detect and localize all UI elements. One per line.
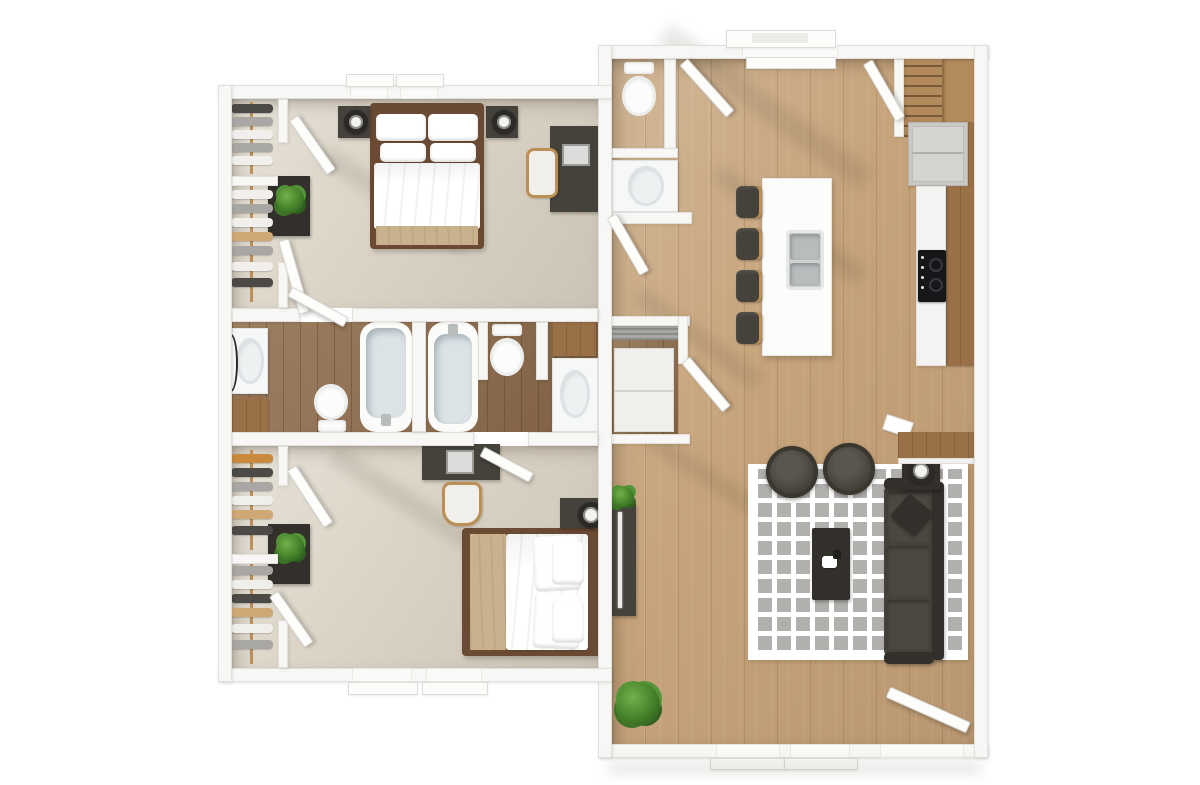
clothes-item (231, 640, 273, 649)
cooktop-burner (929, 258, 943, 272)
clothes-item (231, 278, 273, 287)
dresser-plant (276, 534, 304, 562)
closet-wall (278, 99, 288, 143)
partition-wall (412, 322, 426, 432)
sink-bowl (790, 263, 820, 286)
clothes-item (231, 608, 273, 617)
closet-louver (612, 326, 678, 340)
exterior-shadow (608, 762, 980, 774)
clothes-item (231, 262, 273, 271)
cooktop-knob (921, 266, 924, 269)
bath-cabinet (232, 398, 268, 432)
clothes-item (231, 496, 273, 505)
clothes-item (231, 204, 273, 213)
cooktop-knob (921, 286, 924, 289)
clothes-item (231, 246, 273, 255)
partition-wall (528, 432, 598, 446)
window-sill (348, 682, 418, 695)
bed-tan-throw (376, 226, 478, 245)
toilet-bowl (490, 338, 524, 376)
toilet-bowl (314, 384, 348, 420)
nightstand-lamp (344, 110, 368, 134)
counter-wood-top (946, 186, 974, 366)
window (350, 85, 388, 99)
clothes-item (231, 218, 273, 227)
tub-faucet (381, 414, 391, 426)
closet-wall (232, 554, 278, 564)
bed-pillow (380, 143, 426, 162)
closet-wall (232, 176, 278, 186)
console-edge (898, 458, 974, 464)
stair-wall (894, 59, 904, 137)
window-sill (396, 74, 444, 87)
console-table (898, 432, 974, 460)
tv-screen (618, 512, 622, 608)
dresser-plant (276, 186, 304, 214)
partition-wall (232, 308, 300, 322)
bed-pillow (376, 114, 426, 141)
clothes-item (231, 156, 273, 165)
desk-chair (526, 148, 558, 198)
closet-wall (278, 620, 288, 668)
exterior-wall (974, 45, 988, 758)
floor-plan (0, 0, 1200, 785)
clothes-item (231, 104, 273, 113)
partition-wall (612, 212, 692, 224)
sofa-backrest (932, 482, 944, 660)
bed-pillow (430, 143, 476, 162)
clothes-item (231, 468, 273, 477)
bed-blanket (374, 163, 480, 229)
tub-faucet (448, 324, 458, 336)
exterior-wall (218, 85, 232, 682)
bath-cabinet (552, 322, 596, 356)
clothes-item (231, 566, 273, 575)
entry-door-opening (880, 744, 964, 758)
partition-wall (602, 316, 690, 326)
cooktop-knob (921, 256, 924, 259)
armchair (766, 446, 818, 498)
refrigerator-seam (912, 152, 964, 154)
cooktop-knob (921, 276, 924, 279)
window (400, 85, 438, 99)
cooktop-burner (929, 278, 943, 292)
bed-pillow (428, 114, 478, 141)
desk-chair (442, 482, 482, 526)
partition-wall (478, 322, 488, 380)
bed-pillow (552, 542, 584, 584)
exterior-wall (218, 668, 612, 682)
partition-wall (612, 148, 678, 158)
sofa-cushion (886, 546, 930, 596)
plant (612, 486, 634, 508)
partition-wall (678, 316, 688, 364)
window (716, 744, 780, 758)
floor-plant (616, 682, 660, 726)
bathtub-basin (366, 328, 406, 418)
exterior-wall (598, 45, 612, 758)
partition-wall (352, 308, 598, 322)
closet-wall (278, 446, 288, 486)
clothes-item (231, 482, 273, 491)
window (790, 744, 850, 758)
washer-seam (614, 390, 674, 392)
toilet-bowl (622, 76, 656, 116)
toilet-tank (318, 420, 346, 432)
refrigerator-doors (912, 126, 964, 182)
clothes-item (231, 624, 273, 633)
partition-wall (232, 432, 474, 446)
partition-wall (602, 434, 690, 444)
window-sill (746, 57, 836, 69)
bar-stool (736, 270, 762, 302)
toilet-tank (624, 62, 654, 74)
sofa-cushion (886, 600, 930, 650)
window (426, 668, 482, 682)
clothes-item (231, 580, 273, 589)
bed-tan-throw (470, 534, 506, 650)
armchair (823, 443, 875, 495)
toilet-tank (492, 324, 522, 336)
laptop (446, 450, 474, 474)
window-sill (346, 74, 394, 87)
bathtub-basin (434, 334, 472, 424)
bar-stool (736, 186, 762, 218)
partition-wall (664, 59, 676, 153)
bar-stool (736, 312, 762, 344)
window-sill (422, 682, 488, 695)
sink-bowl (790, 234, 820, 260)
nightstand-lamp (492, 110, 516, 134)
bar-stool (736, 228, 762, 260)
powder-sink (628, 166, 664, 206)
clothes-item (231, 454, 273, 463)
tv-console (612, 504, 636, 616)
clothes-item (231, 510, 273, 519)
clothes-item (231, 117, 273, 126)
vanity-sink (236, 338, 264, 384)
coffee-table-item (833, 550, 841, 559)
clothes-item (231, 594, 273, 603)
clothes-item (231, 190, 273, 199)
stoop-step (752, 33, 808, 43)
partition-wall (536, 322, 548, 380)
clothes-item (231, 143, 273, 152)
clothes-item (231, 130, 273, 139)
bed-pillow (552, 600, 584, 642)
laptop (562, 144, 590, 166)
window (352, 668, 412, 682)
clothes-item (231, 526, 273, 535)
sofa-armrest (884, 652, 934, 664)
clothes-item (231, 232, 273, 241)
vanity-sink (560, 370, 590, 418)
